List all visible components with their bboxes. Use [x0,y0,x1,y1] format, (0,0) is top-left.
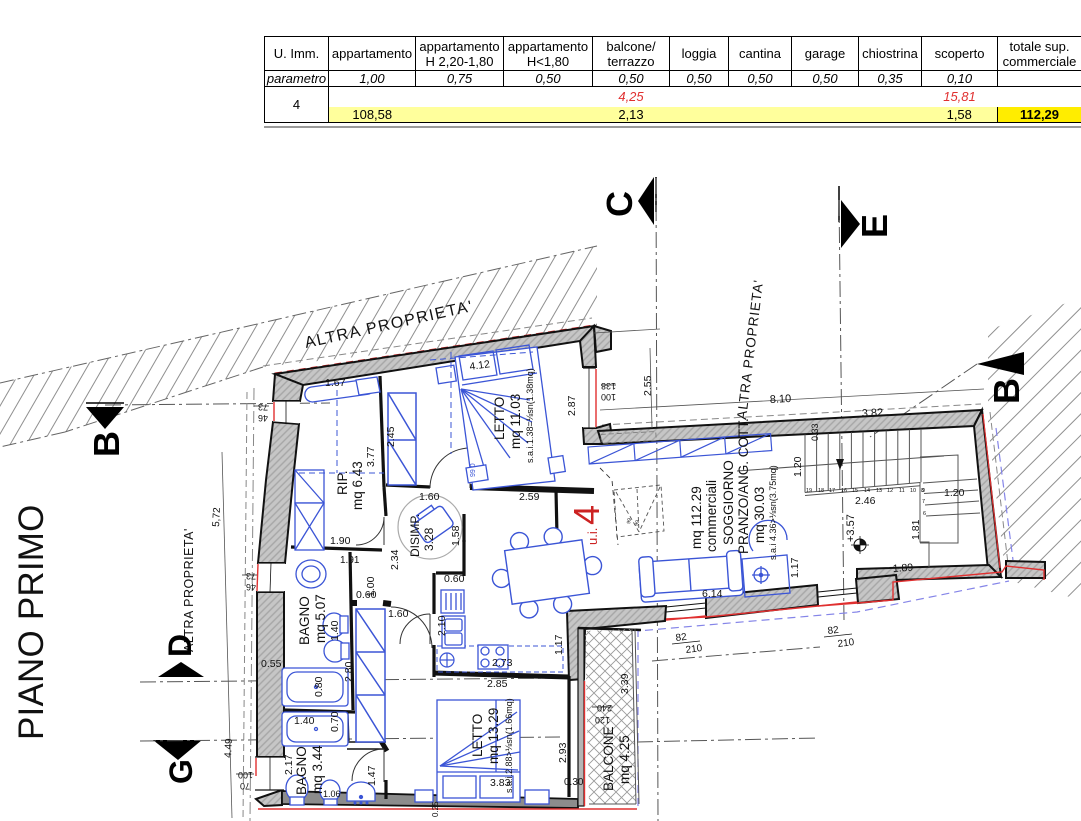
svg-text:46: 46 [258,413,268,423]
svg-text:11: 11 [899,488,905,494]
svg-text:1.67: 1.67 [325,377,346,389]
svg-text:100: 100 [238,770,253,780]
svg-text:LETTO: LETTO [470,714,485,757]
svg-text:19: 19 [806,488,812,494]
svg-text:0.80: 0.80 [313,676,325,697]
svg-text:18: 18 [818,488,824,494]
svg-text:6.14: 6.14 [702,588,723,600]
svg-text:15: 15 [852,488,858,494]
svg-text:5,72: 5,72 [211,507,223,527]
svg-text:BALCONE: BALCONE [601,726,616,791]
svg-text:46: 46 [246,582,256,592]
svg-text:commerciali: commerciali [704,480,719,552]
svg-text:DISIMP.: DISIMP. [408,514,422,557]
svg-text:2.34: 2.34 [389,549,401,570]
svg-text:E: E [854,214,895,238]
svg-text:PRANZO/ANG. COTT.: PRANZO/ANG. COTT. [736,418,751,554]
svg-text:+3.57: +3.57 [845,514,857,542]
svg-text:mq 30.03: mq 30.03 [752,487,767,543]
svg-text:D: D [162,634,198,657]
svg-text:mq 5.07: mq 5.07 [313,594,328,643]
svg-text:2.59: 2.59 [519,491,540,503]
svg-text:70: 70 [240,781,250,791]
svg-text:12: 12 [887,488,893,494]
svg-text:3.83: 3.83 [490,777,511,789]
svg-text:1.81: 1.81 [910,519,922,540]
svg-text:99: 99 [634,520,641,527]
svg-text:mq 112.29: mq 112.29 [689,486,704,549]
svg-text:3.77: 3.77 [365,446,377,467]
svg-text:u.i.: u.i. [585,528,600,545]
svg-text:8.10: 8.10 [770,393,792,406]
svg-text:14: 14 [864,488,870,494]
svg-text:mq 13.29: mq 13.29 [486,708,501,764]
svg-text:17: 17 [829,488,835,494]
svg-text:1.06: 1.06 [323,789,341,799]
svg-text:2.10: 2.10 [436,615,448,636]
svg-text:s.a.i.1.38=⅛sn(1.38mq): s.a.i.1.38=⅛sn(1.38mq) [525,368,535,463]
svg-text:2.80: 2.80 [343,661,355,682]
svg-text:1.20: 1.20 [944,487,965,499]
svg-text:138: 138 [601,381,616,391]
svg-text:ALTRA PROPRIETA': ALTRA PROPRIETA' [182,528,196,652]
svg-text:8: 8 [921,488,924,494]
svg-text:B: B [86,431,127,457]
svg-text:0.70: 0.70 [329,711,341,732]
svg-text:100: 100 [601,392,616,402]
svg-text:2.93: 2.93 [557,742,569,763]
svg-text:2.55: 2.55 [642,375,654,396]
svg-text:C: C [599,191,640,217]
svg-text:2.45: 2.45 [385,426,397,447]
svg-text:1.60: 1.60 [419,491,440,503]
svg-text:240: 240 [597,703,612,713]
svg-text:0.60: 0.60 [444,573,465,585]
svg-text:82: 82 [675,632,688,644]
svg-text:PIANO PRIMO: PIANO PRIMO [12,504,51,740]
svg-text:0.25: 0.25 [431,801,440,817]
svg-text:210: 210 [685,643,703,656]
svg-text:1.60: 1.60 [388,608,409,620]
svg-text:mq 11.03: mq 11.03 [508,394,523,449]
svg-text:3.39: 3.39 [619,673,631,694]
svg-text:73: 73 [258,402,268,412]
svg-text:1.17: 1.17 [789,557,801,578]
svg-text:mq 6.43: mq 6.43 [350,461,365,510]
svg-text:1.58: 1.58 [450,525,462,546]
svg-text:13: 13 [876,488,882,494]
svg-text:3.28: 3.28 [422,527,436,551]
svg-text:ALTRA PROPRIETA': ALTRA PROPRIETA' [734,278,766,420]
svg-text:6: 6 [923,511,926,517]
svg-text:1.17: 1.17 [553,634,565,655]
svg-text:1.40: 1.40 [329,620,341,641]
svg-text:7: 7 [922,499,925,505]
svg-text:4: 4 [566,505,607,525]
svg-text:G: G [163,759,199,784]
svg-text:0.55: 0.55 [261,658,282,670]
svg-text:s.a.i 4.36>⅛sn(3.75mq): s.a.i 4.36>⅛sn(3.75mq) [768,465,778,560]
svg-text:82: 82 [827,625,840,637]
svg-text:2.17: 2.17 [283,754,295,775]
svg-text:99 0: 99 0 [470,463,477,477]
svg-text:0.30: 0.30 [564,777,584,788]
svg-text:2.73: 2.73 [492,657,513,669]
svg-text:mq 3.44: mq 3.44 [310,745,325,794]
svg-text:0.33: 0.33 [810,423,820,441]
svg-text:LETTO: LETTO [492,397,507,440]
svg-text:BAGNO: BAGNO [297,596,312,645]
svg-text:1.91: 1.91 [340,555,360,566]
svg-text:mq 4.25: mq 4.25 [617,735,632,784]
svg-text:BAGNO: BAGNO [294,746,309,795]
svg-text:1.40: 1.40 [294,715,315,727]
svg-text:4.49: 4.49 [223,738,235,758]
svg-text:2.87: 2.87 [566,395,578,416]
svg-text:73: 73 [246,571,256,581]
svg-text:2.85: 2.85 [487,678,508,690]
svg-text:SOGGIORNO: SOGGIORNO [721,460,736,545]
svg-text:B: B [986,378,1027,404]
svg-text:16: 16 [841,488,847,494]
svg-text:120: 120 [595,715,610,725]
svg-text:0.60: 0.60 [356,589,377,601]
svg-text:10: 10 [910,488,916,494]
svg-text:1.90: 1.90 [330,535,351,547]
svg-text:1.47: 1.47 [366,765,378,786]
svg-text:1.20: 1.20 [792,456,804,477]
svg-text:1.89: 1.89 [892,562,913,575]
svg-text:2.46: 2.46 [855,495,876,507]
svg-text:RIP.: RIP. [335,470,350,495]
svg-text:99: 99 [626,518,633,525]
svg-text:210: 210 [837,637,855,650]
